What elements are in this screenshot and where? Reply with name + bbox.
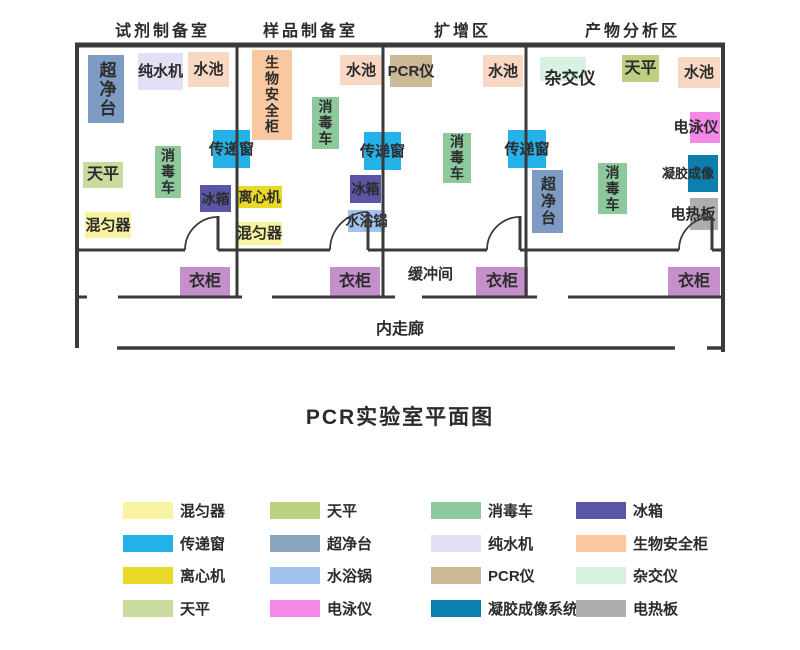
pass-box-label: 传递窗 — [209, 142, 254, 157]
legend-label: 杂交仪 — [633, 565, 678, 586]
room-label-amplification: 扩增区 — [400, 17, 525, 41]
legend-label: 冰箱 — [633, 500, 663, 521]
mixer-label: 混匀器 — [85, 218, 130, 233]
water-purifier-label: 纯水机 — [138, 64, 183, 79]
legend-swatch-balance — [123, 600, 173, 617]
pcr-machine-label: PCR仪 — [388, 64, 435, 79]
legend-swatch-centrifuge — [123, 567, 173, 584]
wardrobe-label: 衣柜 — [678, 274, 710, 290]
fridge-label: 冰箱 — [202, 192, 230, 206]
water-bath-label: 水浴锅 — [346, 214, 388, 228]
centrifuge-label: 离心机 — [239, 190, 281, 204]
legend-swatch-clean-bench — [270, 535, 320, 552]
wardrobe-label: 衣柜 — [339, 274, 371, 290]
pass-box-label: 传递窗 — [360, 144, 405, 159]
legend-label: 混匀器 — [180, 500, 225, 521]
legend-label: 生物安全柜 — [633, 533, 708, 554]
electrophoresis-label: 电泳仪 — [674, 120, 719, 135]
legend-swatch-water-bath — [270, 567, 320, 584]
legend-swatch-biosafety-cabinet — [576, 535, 626, 552]
balance-label: 天平 — [87, 167, 119, 183]
inner-corridor-label: 内走廊 — [360, 315, 440, 339]
wardrobe-label: 衣柜 — [189, 274, 221, 290]
room-label-sample-prep: 样品制备室 — [238, 17, 383, 41]
buffer-room-label: 缓冲间 — [408, 263, 453, 284]
fridge-label: 冰箱 — [352, 182, 380, 196]
legend-label: 离心机 — [180, 565, 225, 586]
legend-label: 水浴锅 — [327, 565, 372, 586]
legend-swatch-fridge — [576, 502, 626, 519]
legend-label: 超净台 — [327, 533, 372, 554]
legend-label: PCR仪 — [488, 565, 535, 586]
legend-swatch-mixer — [123, 502, 173, 519]
legend-swatch-electrophoresis — [270, 600, 320, 617]
balance-label: 天平 — [624, 61, 656, 77]
disinfection-cart-label: 消毒车 — [606, 165, 620, 213]
hybridization-instrument-label: 杂交仪 — [545, 70, 596, 87]
pcr-lab-floor-plan: 试剂制备室 样品制备室 扩增区 产物分析区 — [0, 0, 800, 650]
legend-label: 纯水机 — [488, 533, 533, 554]
page-title: PCR实验室平面图 — [0, 401, 800, 431]
legend-label: 凝胶成像系统 — [488, 598, 578, 619]
legend-label: 传递窗 — [180, 533, 225, 554]
legend-swatch-hybridization — [576, 567, 626, 584]
disinfection-cart-label: 消毒车 — [319, 99, 333, 147]
legend-label: 电热板 — [633, 598, 678, 619]
disinfection-cart-label: 消毒车 — [161, 148, 175, 196]
legend-label: 天平 — [327, 500, 357, 521]
legend-label: 消毒车 — [488, 500, 533, 521]
disinfection-cart-label: 消毒车 — [450, 134, 464, 182]
clean-bench-label: 超净台 — [540, 176, 555, 227]
legend-swatch-disinfection-cart — [431, 502, 481, 519]
legend-label: 电泳仪 — [327, 598, 372, 619]
room-label-product-analysis: 产物分析区 — [555, 17, 710, 41]
legend-swatch-pcr-machine — [431, 567, 481, 584]
room-label-reagent-prep: 试剂制备室 — [90, 17, 235, 41]
biosafety-cabinet-label: 生物安全柜 — [265, 55, 279, 135]
hot-plate-label: 电热板 — [671, 207, 716, 222]
legend-swatch-gel-imaging-system — [431, 600, 481, 617]
pass-box-label: 传递窗 — [505, 142, 550, 157]
legend-swatch-water-purifier — [431, 535, 481, 552]
mixer-label: 混匀器 — [237, 226, 282, 241]
sink-label: 水池 — [488, 64, 518, 79]
legend-swatch-hot-plate — [576, 600, 626, 617]
gel-imaging-label: 凝胶成像 — [662, 167, 714, 180]
legend-label: 天平 — [180, 598, 210, 619]
door-arc — [487, 217, 520, 250]
door-leaf — [218, 212, 712, 250]
wardrobe-label: 衣柜 — [486, 274, 518, 290]
sink-label: 水池 — [346, 63, 376, 78]
clean-bench-label: 超净台 — [98, 61, 115, 118]
sink-label: 水池 — [193, 62, 223, 77]
legend-swatch-pass-box — [123, 535, 173, 552]
sink-label: 水池 — [684, 65, 714, 80]
door-arc — [185, 217, 218, 250]
legend-swatch-balance-2 — [270, 502, 320, 519]
